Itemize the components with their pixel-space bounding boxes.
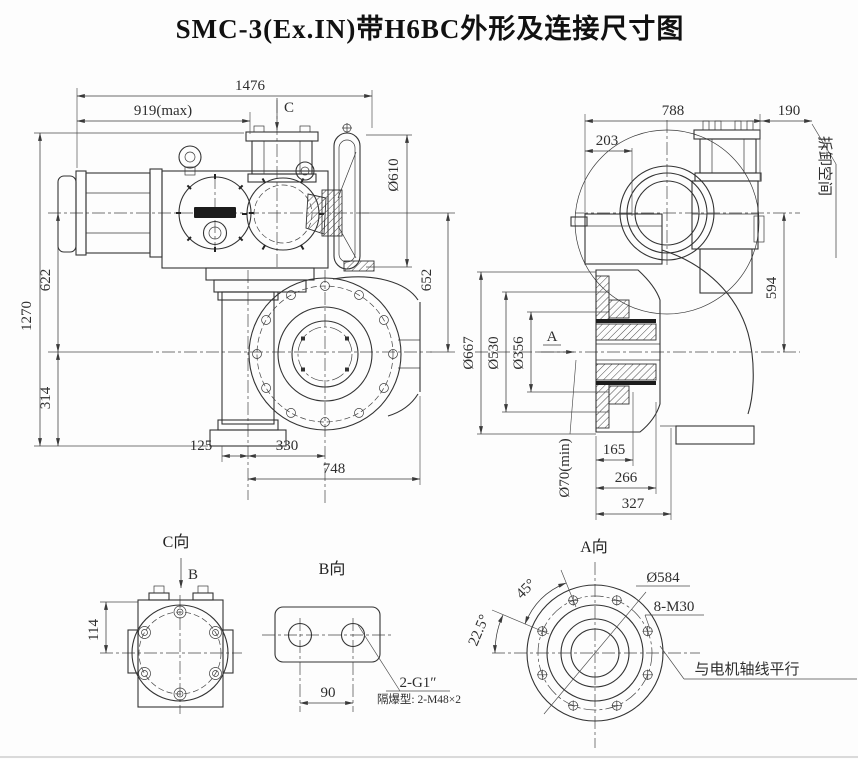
view-b-label: B向 — [319, 560, 346, 578]
section-c-arrow: C — [284, 100, 294, 116]
dim-788: 788 — [662, 103, 685, 119]
side-view-dimensions: 788 190 拆卸空间 203 594 Ø667 Ø530 Ø356 A Ø7… — [461, 103, 836, 520]
brand-badge — [194, 207, 236, 218]
conduit-note: 隔爆型: 2-M48×2 — [377, 692, 461, 706]
dim-flange-od: Ø667 — [461, 336, 477, 370]
dim-overall-length: 1476 — [235, 78, 266, 94]
dimension-drawing: SMC-3(Ex.IN)带H6BC外形及连接尺寸图 — [0, 0, 858, 759]
base-foot — [660, 426, 754, 444]
view-c: C向 B 114 — [86, 533, 242, 714]
side-view: 788 190 拆卸空间 203 594 Ø667 Ø530 Ø356 A Ø7… — [461, 103, 836, 520]
dim-125: 125 — [190, 438, 213, 454]
section-a-arrow: A — [547, 329, 558, 345]
drawing-sheet: SMC-3(Ex.IN)带H6BC外形及连接尺寸图 — [0, 0, 858, 759]
terminal-box-side — [694, 121, 761, 181]
view-b: B向 2-G1″ 隔爆型: 2-M48×2 90 — [262, 560, 461, 712]
limit-switch-box — [692, 181, 764, 293]
gear-housing — [162, 171, 328, 292]
dim-748: 748 — [323, 461, 346, 477]
flange-section — [596, 270, 660, 432]
dim-327: 327 — [622, 496, 645, 512]
dim-bolt-circle: Ø584 — [646, 570, 680, 586]
dim-594: 594 — [764, 276, 780, 299]
dim-266: 266 — [615, 470, 638, 486]
dim-90: 90 — [321, 685, 336, 701]
dim-330: 330 — [276, 438, 299, 454]
dim-22-5deg: 22.5° — [466, 612, 493, 648]
dim-motor-extent: 919(max) — [134, 103, 192, 119]
view-a: A向 45° 22.5° Ø584 8-M30 与电机轴线平行 — [466, 538, 857, 748]
dim-314: 314 — [38, 386, 54, 409]
view-c-label: C向 — [163, 533, 190, 551]
terminal-box — [246, 126, 318, 182]
dim-pilot-dia: Ø356 — [511, 336, 527, 370]
dim-handwheel-dia: Ø610 — [386, 158, 402, 191]
body-outline — [662, 250, 753, 414]
dim-165: 165 — [603, 442, 626, 458]
conduit-spec: 2-G1″ — [399, 675, 436, 691]
drawing-title: SMC-3(Ex.IN)带H6BC外形及连接尺寸图 — [176, 13, 685, 44]
alignment-note: 与电机轴线平行 — [694, 661, 799, 678]
dim-stem-bore: Ø70(min) — [557, 438, 573, 497]
view-a-label: A向 — [580, 538, 608, 556]
dim-overall-height: 1270 — [19, 301, 35, 331]
section-b-arrow: B — [188, 567, 198, 583]
dim-114: 114 — [86, 619, 102, 641]
dim-652: 652 — [419, 269, 435, 292]
dim-45deg: 45° — [513, 576, 539, 602]
removal-space-note: 拆卸空间 — [816, 136, 833, 196]
bolt-spec: 8-M30 — [654, 599, 695, 615]
dim-203: 203 — [596, 133, 619, 149]
dim-spigot-dia: Ø530 — [486, 336, 502, 369]
dim-190: 190 — [778, 103, 801, 119]
front-view: 1476 919(max) C Ø610 652 1270 622 314 12… — [19, 78, 455, 505]
dim-622: 622 — [38, 269, 54, 292]
lifting-eye — [179, 146, 314, 180]
handwheel — [306, 123, 374, 271]
